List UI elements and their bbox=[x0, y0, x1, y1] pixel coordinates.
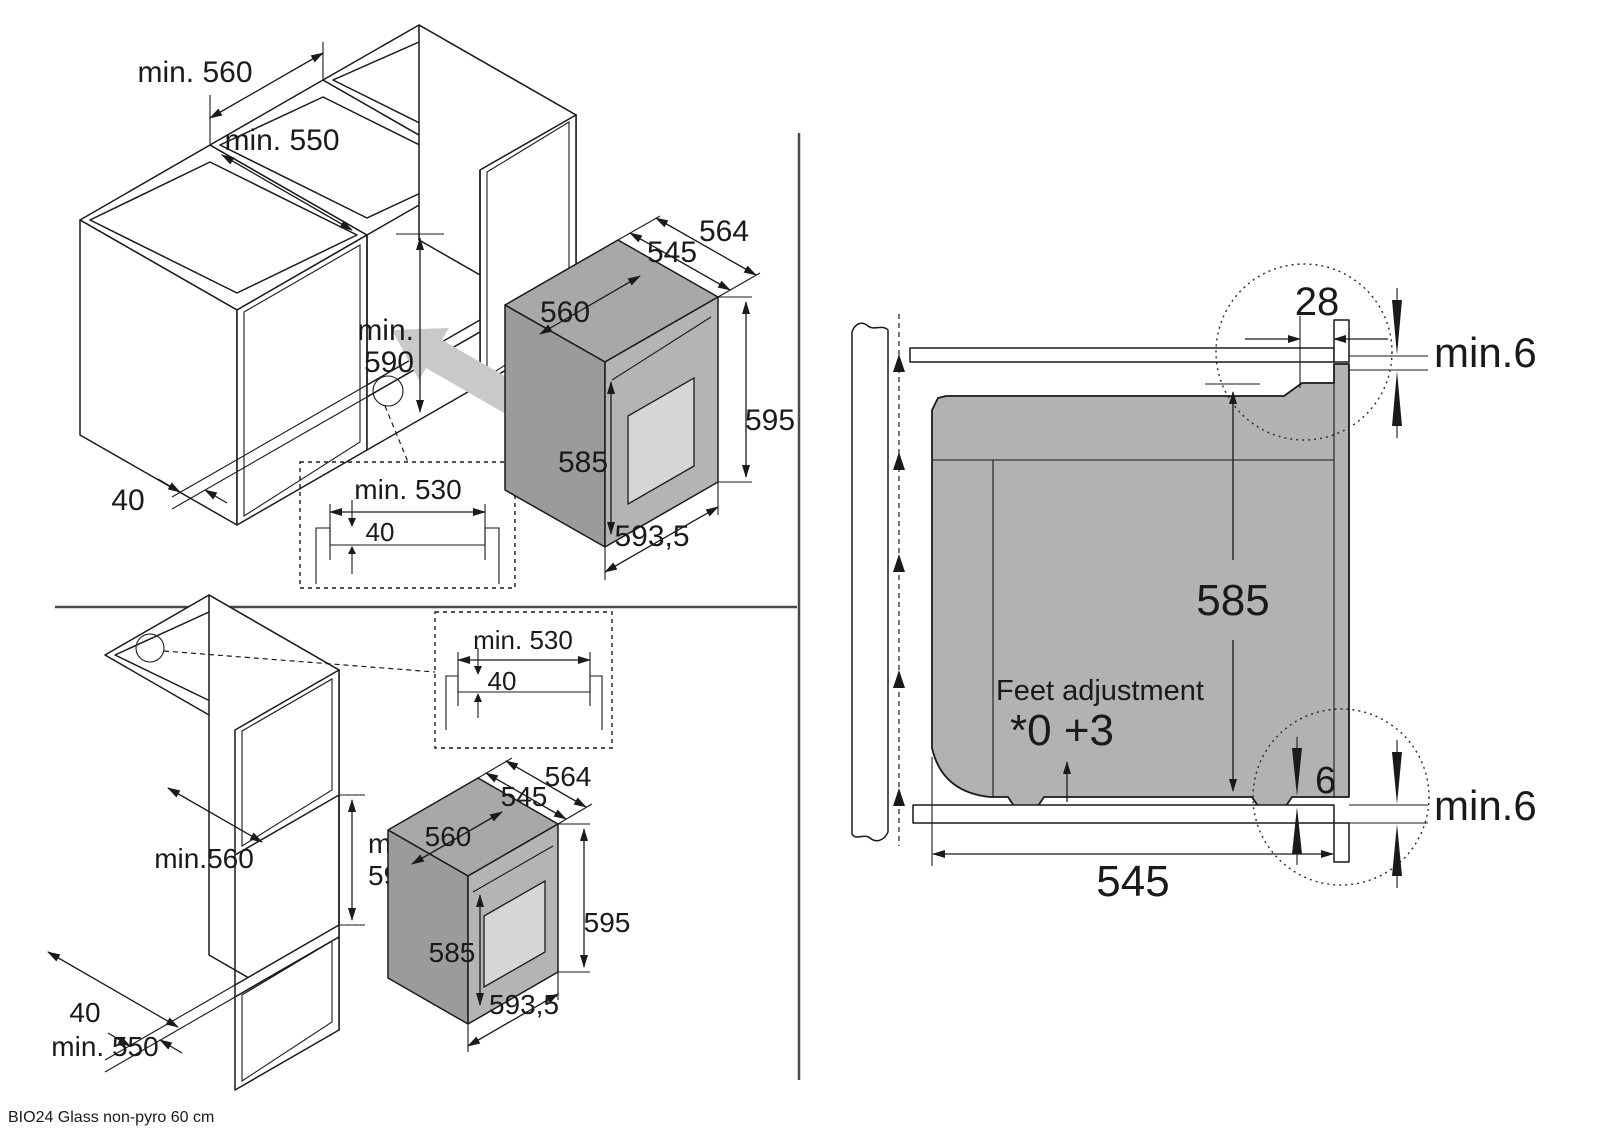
inset-depth-label: 40 bbox=[488, 666, 517, 696]
oven-depth-overall-label: 564 bbox=[545, 761, 592, 792]
body-depth-label: 545 bbox=[1096, 857, 1169, 906]
oven-top-width-label: 560 bbox=[540, 296, 590, 329]
base-depth-dimension: min. 550 bbox=[48, 952, 178, 1062]
bottom-shelf bbox=[913, 805, 1334, 823]
door-top-lip bbox=[1334, 320, 1349, 362]
airflow-arrow-icon bbox=[893, 670, 905, 688]
rail-cross-section-inset: min. 530 40 bbox=[435, 612, 612, 748]
airflow-arrow-icon bbox=[893, 452, 905, 470]
niche-height-label-2: 590 bbox=[364, 346, 414, 379]
feet-adjustment-title: Feet adjustment bbox=[996, 675, 1204, 707]
niche-width-label: min. 560 bbox=[137, 56, 252, 89]
oven-front-width-label: 593,5 bbox=[614, 520, 689, 553]
front-rail-label: 40 bbox=[111, 484, 144, 517]
frame-overhang-dimension: 28 bbox=[1245, 280, 1388, 388]
bottom-gap-label: 6 bbox=[1315, 760, 1336, 802]
oven-side-height-label: 585 bbox=[558, 446, 608, 479]
bottom-clearance-label: min.6 bbox=[1434, 782, 1537, 829]
oven-cross-section bbox=[932, 364, 1349, 806]
door-bottom-lip bbox=[1334, 823, 1349, 862]
inset-width-label: min. 530 bbox=[473, 625, 573, 655]
front-rail-label: 40 bbox=[69, 997, 100, 1028]
oven-front-height-label: 595 bbox=[584, 907, 631, 938]
built-under-installation-diagram: min. 560 min. 550 min. 590 40 min. 53 bbox=[80, 25, 795, 588]
oven-depth-body-label: 545 bbox=[647, 236, 697, 269]
niche-depth-label: min. 550 bbox=[224, 124, 339, 157]
rear-wall bbox=[852, 323, 888, 840]
worktop bbox=[910, 348, 1334, 362]
tall-cabinet-installation-diagram: min. 530 40 min. 590 min.560 bbox=[8, 595, 630, 1126]
oven-side-height-label: 585 bbox=[429, 937, 476, 968]
oven-top-width-label: 560 bbox=[425, 821, 472, 852]
niche-height-label-1: min. bbox=[357, 314, 414, 347]
installation-diagram-canvas: min. 560 min. 550 min. 590 40 min. 53 bbox=[0, 0, 1600, 1131]
feet-adjustment-range: *0 +3 bbox=[1010, 706, 1114, 755]
side-section-diagram: 28 min.6 585 Feet adjustment *0 +3 bbox=[852, 264, 1537, 906]
oven-depth-body-label: 545 bbox=[501, 781, 548, 812]
top-clearance-dimension: min.6 bbox=[1349, 288, 1537, 438]
frame-overhang-label: 28 bbox=[1295, 280, 1340, 324]
oven-isometric: 564 545 560 585 595 593,5 bbox=[388, 758, 630, 1052]
base-depth-label: min. 550 bbox=[51, 1031, 158, 1062]
inset-width-label: min. 530 bbox=[354, 474, 461, 505]
ventilation-airflow-line bbox=[893, 314, 905, 846]
model-caption: BIO24 Glass non-pyro 60 cm bbox=[8, 1109, 214, 1126]
rail-cross-section-inset: min. 530 40 bbox=[300, 462, 515, 588]
installation-drawing-page: min. 560 min. 550 min. 590 40 min. 53 bbox=[0, 0, 1600, 1131]
oven-front-width-label: 593,5 bbox=[489, 989, 559, 1020]
bottom-clearance-dimension: min.6 bbox=[1349, 740, 1537, 888]
oven-depth-overall-label: 564 bbox=[699, 215, 749, 248]
airflow-arrow-icon bbox=[893, 354, 905, 372]
inset-depth-label: 40 bbox=[366, 517, 395, 547]
oven-front-height-label: 595 bbox=[745, 404, 795, 437]
base-cabinet-run bbox=[80, 25, 576, 525]
niche-depth-label: min.560 bbox=[154, 843, 254, 874]
body-height-label: 585 bbox=[1196, 576, 1269, 625]
airflow-arrow-icon bbox=[893, 788, 905, 806]
airflow-arrow-icon bbox=[893, 554, 905, 572]
top-clearance-label: min.6 bbox=[1434, 329, 1537, 376]
